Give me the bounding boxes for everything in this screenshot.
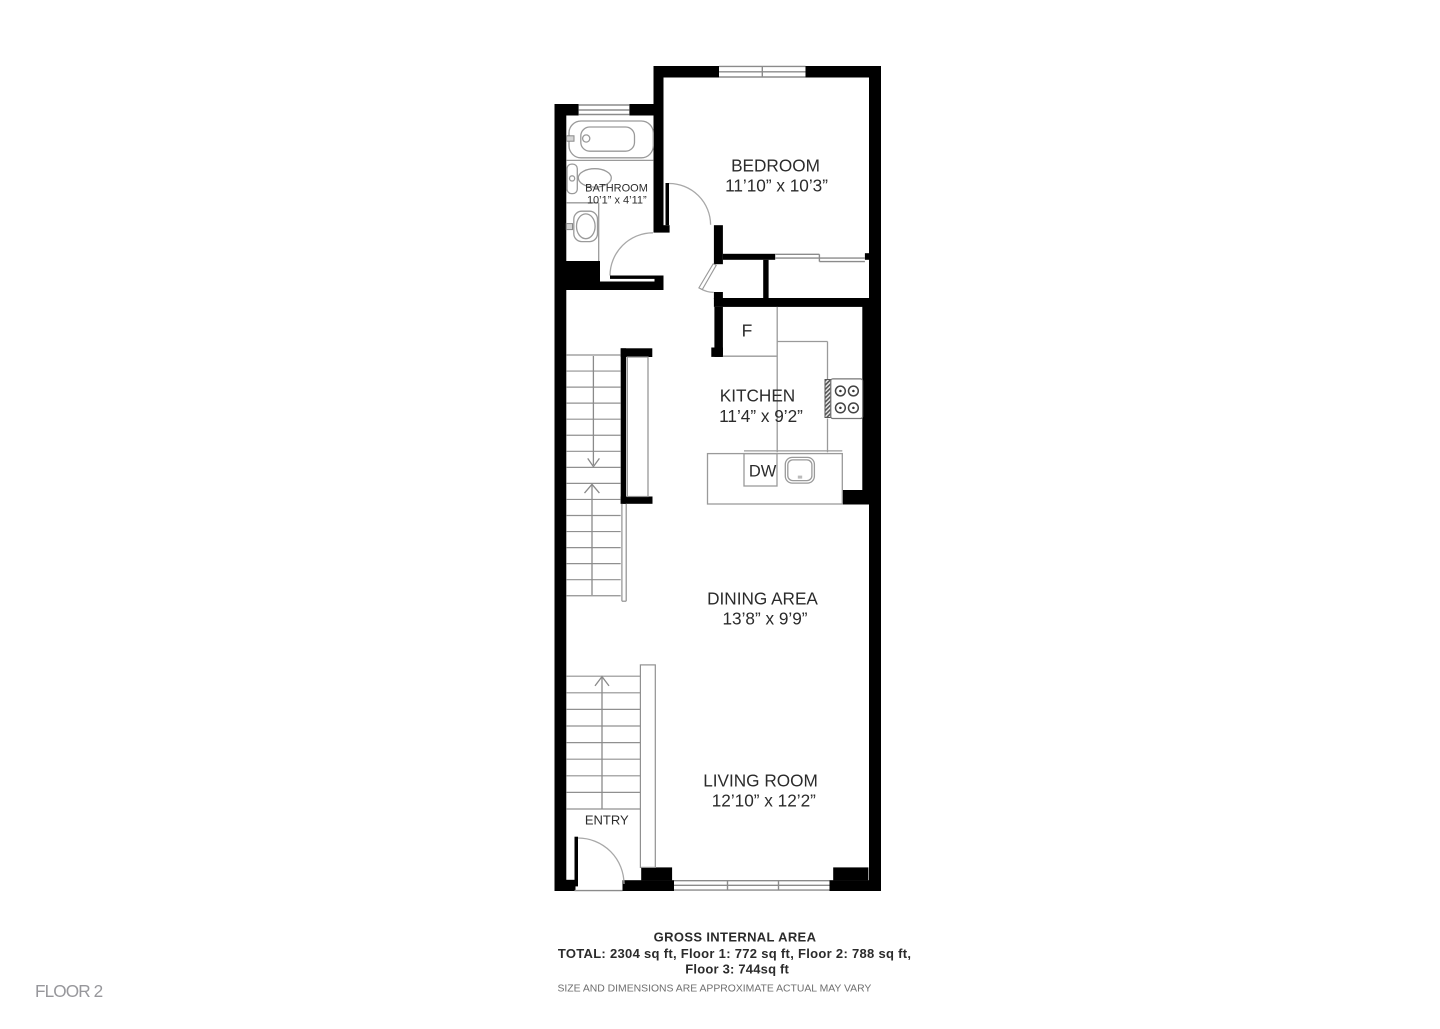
- svg-text:F: F: [742, 321, 753, 341]
- svg-text:BEDROOM: BEDROOM: [731, 156, 820, 176]
- svg-text:BATHROOM: BATHROOM: [585, 182, 648, 194]
- svg-text:Floor 3: 744sq ft: Floor 3: 744sq ft: [685, 961, 789, 976]
- svg-text:10’1” x 4’11”: 10’1” x 4’11”: [587, 194, 647, 206]
- svg-text:GROSS INTERNAL AREA: GROSS INTERNAL AREA: [654, 929, 817, 944]
- svg-text:DINING AREA: DINING AREA: [707, 589, 818, 609]
- svg-text:LIVING ROOM: LIVING ROOM: [703, 770, 818, 790]
- svg-text:SIZE AND DIMENSIONS ARE APPROX: SIZE AND DIMENSIONS ARE APPROXIMATE ACTU…: [557, 984, 871, 995]
- svg-text:11’4” x 9’2”: 11’4” x 9’2”: [719, 406, 803, 426]
- svg-text:12’10” x 12’2”: 12’10” x 12’2”: [712, 791, 816, 811]
- svg-text:FLOOR 2: FLOOR 2: [35, 981, 103, 1001]
- svg-text:TOTAL: 2304 sq ft, Floor 1: 77: TOTAL: 2304 sq ft, Floor 1: 772 sq ft, F…: [558, 946, 912, 961]
- svg-text:13’8” x 9’9”: 13’8” x 9’9”: [722, 608, 807, 628]
- svg-text:DW: DW: [749, 462, 777, 480]
- svg-text:KITCHEN: KITCHEN: [720, 386, 795, 406]
- svg-text:11’10” x 10’3”: 11’10” x 10’3”: [725, 175, 828, 195]
- svg-text:ENTRY: ENTRY: [585, 813, 629, 828]
